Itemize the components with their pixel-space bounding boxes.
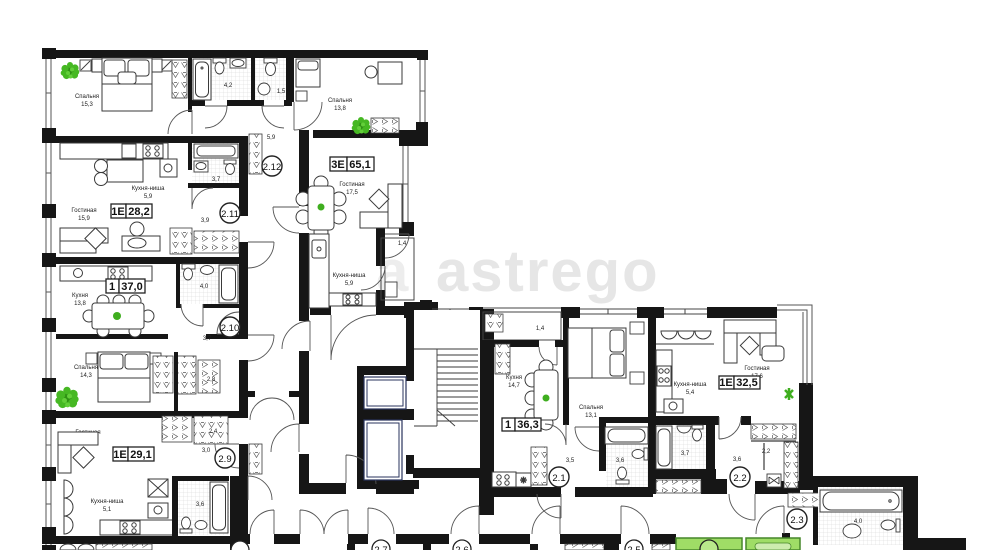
svg-text:3,9: 3,9: [201, 218, 210, 224]
svg-text:32,5: 32,5: [736, 377, 757, 389]
svg-text:3,6: 3,6: [616, 458, 625, 464]
svg-text:17,5: 17,5: [346, 190, 358, 196]
svg-text:2.9: 2.9: [218, 454, 231, 465]
svg-text:1,4: 1,4: [536, 326, 545, 332]
svg-text:3,7: 3,7: [681, 451, 690, 457]
svg-text:Спальня: Спальня: [328, 98, 352, 104]
svg-text:3Е: 3Е: [331, 159, 344, 171]
svg-text:Гостиная: Гостиная: [339, 182, 364, 188]
svg-text:2.2: 2.2: [733, 473, 746, 484]
svg-text:3,0: 3,0: [202, 448, 211, 454]
svg-text:5,9: 5,9: [345, 281, 354, 287]
svg-text:1Е: 1Е: [111, 206, 124, 218]
svg-text:2,2: 2,2: [762, 449, 771, 455]
svg-text:astrego: astrego: [436, 239, 660, 304]
svg-text:65,1: 65,1: [349, 159, 370, 171]
svg-text:2,4: 2,4: [209, 429, 218, 435]
svg-text:Кухня: Кухня: [506, 375, 522, 381]
svg-text:✳: ✳: [520, 476, 527, 485]
svg-text:36,3: 36,3: [517, 419, 538, 431]
svg-text:Спальня: Спальня: [579, 405, 603, 411]
svg-text:2.7: 2.7: [374, 545, 387, 550]
svg-text:28,2: 28,2: [128, 206, 149, 218]
svg-text:2,8: 2,8: [207, 377, 216, 383]
svg-text:1: 1: [505, 419, 511, 431]
svg-text:Кухня-ниша: Кухня-ниша: [333, 273, 367, 279]
svg-text:15,9: 15,9: [78, 216, 90, 222]
svg-text:5,4: 5,4: [686, 390, 695, 396]
svg-text:3,5: 3,5: [566, 458, 575, 464]
svg-text:13,8: 13,8: [74, 301, 86, 307]
svg-text:15,3: 15,3: [81, 102, 93, 108]
svg-text:Спальня: Спальня: [75, 94, 99, 100]
svg-text:2.10: 2.10: [221, 323, 240, 334]
svg-text:2.5: 2.5: [627, 545, 640, 550]
svg-text:5,1: 5,1: [103, 507, 112, 513]
svg-text:13,8: 13,8: [334, 106, 346, 112]
svg-text:Кухня: Кухня: [72, 293, 88, 299]
svg-text:37,0: 37,0: [121, 281, 142, 293]
svg-text:5,9: 5,9: [267, 135, 276, 141]
svg-text:13,1: 13,1: [585, 413, 597, 419]
svg-text:Кухня-ниша: Кухня-ниша: [674, 382, 708, 388]
svg-text:2.1: 2.1: [552, 473, 565, 484]
svg-text:3,6: 3,6: [733, 457, 742, 463]
svg-text:1,5: 1,5: [277, 89, 286, 95]
svg-text:14,7: 14,7: [508, 383, 520, 389]
svg-text:1: 1: [109, 281, 115, 293]
svg-text:5,9: 5,9: [144, 194, 153, 200]
svg-text:4,0: 4,0: [200, 284, 209, 290]
svg-text:3,6: 3,6: [196, 502, 205, 508]
svg-text:Гостиная: Гостиная: [71, 208, 96, 214]
svg-text:Спальня: Спальня: [74, 365, 98, 371]
svg-text:3,7: 3,7: [203, 336, 212, 342]
svg-text:Кухня-ниша: Кухня-ниша: [132, 186, 166, 192]
svg-text:4,0: 4,0: [854, 519, 863, 525]
svg-text:29,1: 29,1: [130, 449, 151, 461]
svg-text:2.11: 2.11: [221, 209, 239, 220]
svg-text:3,7: 3,7: [212, 177, 221, 183]
svg-text:Кухня-ниша: Кухня-ниша: [91, 499, 125, 505]
svg-text:Гостиная: Гостиная: [744, 366, 769, 372]
svg-text:2.3: 2.3: [790, 515, 803, 526]
svg-text:14,3: 14,3: [80, 373, 92, 379]
svg-text:1Е: 1Е: [113, 449, 126, 461]
svg-text:2.6: 2.6: [455, 545, 468, 550]
svg-text:1Е: 1Е: [719, 377, 732, 389]
svg-text:4,2: 4,2: [224, 83, 233, 89]
svg-text:2.12: 2.12: [263, 162, 282, 173]
